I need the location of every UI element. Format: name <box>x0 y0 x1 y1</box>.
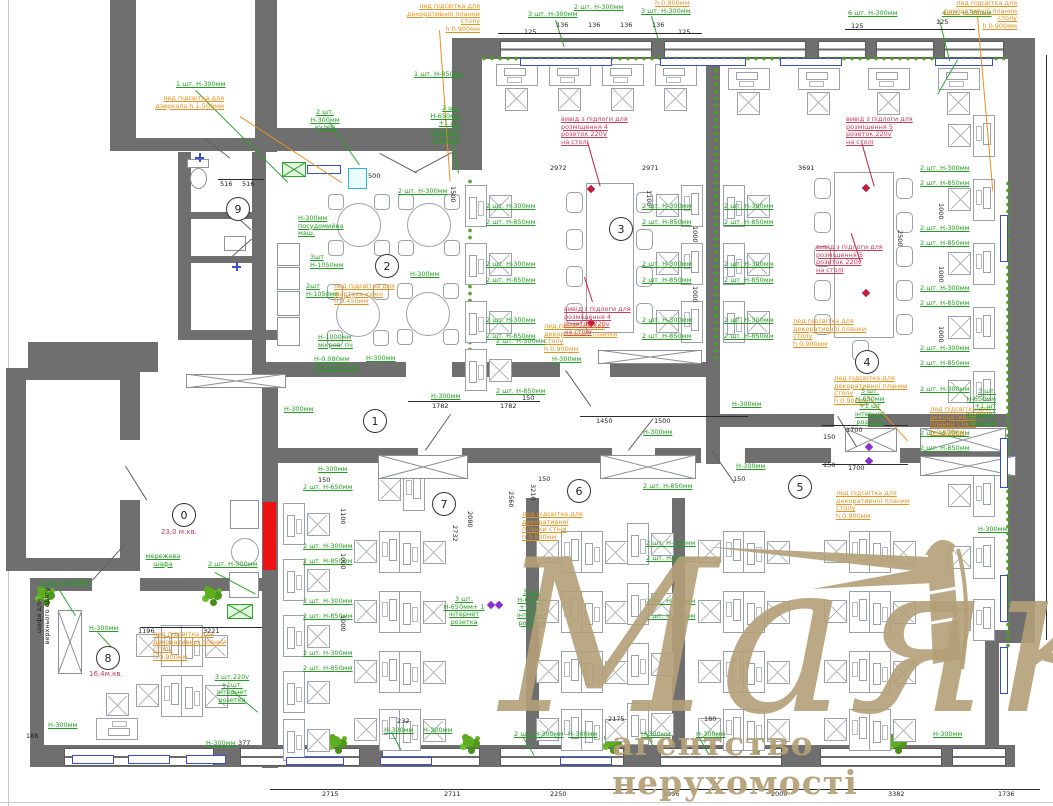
keyboard-icon <box>382 602 388 617</box>
monitor-icon <box>469 361 477 383</box>
keyboard-icon <box>756 547 762 562</box>
dimension-label: 1000 <box>692 226 699 243</box>
annotation-label: 3 шт.220v +1шт. інтернет розетка <box>211 674 253 705</box>
chair-icon <box>824 718 847 741</box>
desk-station <box>743 591 791 633</box>
annotation-label: 3шт Н-1050мм <box>310 254 344 269</box>
door-leaf <box>379 153 417 174</box>
annotation-label: 2 шт. Н-850мм <box>920 300 970 308</box>
desk-station <box>465 349 513 391</box>
desk-station <box>728 68 770 116</box>
keyboard-icon <box>296 575 302 590</box>
keyboard-icon <box>976 610 982 625</box>
monitor-icon <box>983 607 991 629</box>
monitor-icon <box>287 731 295 753</box>
desk <box>869 531 891 573</box>
window-sill-shelf <box>286 757 344 765</box>
keyboard-icon <box>882 547 888 562</box>
annotation-label: Н-300мм <box>732 401 761 409</box>
desk-station <box>868 68 910 116</box>
keyboard-icon <box>564 542 570 557</box>
annotation-label: 2 шт. Н-850мм <box>643 483 693 491</box>
network-cabinet <box>263 502 276 570</box>
cafe-chair-icon <box>328 194 344 210</box>
desk <box>465 301 487 343</box>
chair-icon <box>307 729 330 752</box>
annotation-label: 2 шт. Н-850мм <box>303 665 353 673</box>
dimension-label: 3382 <box>888 791 905 798</box>
meeting-chair-icon <box>896 246 913 267</box>
annotation-label: 2 шт. Н-850мм <box>920 240 970 248</box>
desk-station <box>399 531 447 573</box>
chair-icon <box>536 660 559 683</box>
room-number-badge: 2 <box>375 254 399 278</box>
dimension-label: 377 <box>238 740 250 747</box>
cabinet-crossbox <box>378 455 468 479</box>
desk <box>849 651 871 693</box>
room-number-badge: 9 <box>226 197 250 221</box>
desk <box>465 243 487 285</box>
dimension-label: 500 <box>368 173 380 180</box>
window-sill-shelf <box>780 58 842 66</box>
keyboard-icon <box>406 480 412 495</box>
chair-icon <box>698 540 721 563</box>
keyboard-icon <box>739 81 754 87</box>
desk <box>181 675 203 717</box>
keyboard-icon <box>412 547 418 562</box>
coat-rack-greenbox <box>282 162 306 177</box>
garland-plants-strip <box>712 60 720 360</box>
desk-station <box>399 591 447 633</box>
window-sill-shelf <box>560 757 612 765</box>
keyboard-icon <box>594 607 600 622</box>
door-leaf <box>711 450 735 484</box>
chair-icon <box>948 252 971 275</box>
annotation-label: Н-300мм <box>641 731 670 739</box>
dimension-label: 1736 <box>998 791 1015 798</box>
annotation-label: 2 шт. Н-300мм <box>642 317 692 325</box>
monitor-icon <box>873 663 881 685</box>
wall-segment <box>262 578 278 768</box>
annotation-label: 2 шт. Н-850мм <box>646 613 696 621</box>
keyboard-icon <box>412 607 418 622</box>
window-sill-shelf <box>520 58 612 66</box>
dimension-label: 136 <box>620 22 632 29</box>
annotation-label: лед підсвітка для декоративної планки ст… <box>836 490 922 521</box>
desk <box>379 531 401 573</box>
monitor-icon <box>287 515 295 537</box>
chair-icon <box>893 661 916 684</box>
dimension-label: 2500 <box>897 230 904 247</box>
desk <box>496 64 538 86</box>
monitor-icon <box>631 595 639 617</box>
desk-station <box>743 709 791 751</box>
monitor-icon <box>287 683 295 705</box>
chair-icon <box>767 719 790 742</box>
keyboard-icon <box>809 81 824 87</box>
dimension-label: 136 <box>652 22 664 29</box>
keyboard-icon <box>756 667 762 682</box>
dimension-label: 1000 <box>340 553 347 570</box>
annotation-label: лед підсвітка для декоративної планки ст… <box>386 3 480 34</box>
monitor-icon <box>663 68 685 76</box>
window-sill-shelf <box>186 755 226 764</box>
dimension-label: 1000 <box>340 615 347 632</box>
monitor-icon <box>859 539 867 561</box>
annotation-label: 2 шт. Н-850мм <box>646 555 696 563</box>
wall-segment <box>190 256 252 263</box>
annotation-label: шафа для верхнього одягу <box>36 584 51 648</box>
keyboard-icon <box>882 607 888 622</box>
desk-station <box>743 651 791 693</box>
desk <box>399 531 421 573</box>
annotation-label: вивід з підлоги для розміщення 5 розеток… <box>846 116 914 147</box>
monitor-icon <box>403 603 411 625</box>
keyboard-icon <box>666 77 681 83</box>
annotation-label: 2 шт. Н-300мм <box>920 225 970 233</box>
dimension-label: 2711 <box>444 791 461 798</box>
desk-station <box>353 651 401 693</box>
annotation-label: 2 шт. Н-850мм <box>724 333 774 341</box>
desk <box>379 651 401 693</box>
keyboard-icon <box>852 542 858 557</box>
desk-station <box>947 243 995 285</box>
annotation-label: 2 шт. Н-300мм <box>920 345 970 353</box>
monitor-icon <box>859 659 867 681</box>
desk-station <box>581 651 629 693</box>
dimension-label: 516 <box>220 181 232 188</box>
desk <box>973 475 995 517</box>
dimension-label: 2971 <box>642 165 659 172</box>
desk <box>973 115 995 157</box>
desk <box>723 591 745 633</box>
chair-icon <box>605 661 628 684</box>
monitor-icon <box>983 251 991 273</box>
dimension-label: 3221 <box>203 628 220 635</box>
room-number-badge: 0 <box>172 503 196 527</box>
dimension-line <box>1046 55 1047 640</box>
desk-station <box>697 591 745 633</box>
monitor-icon <box>185 687 193 709</box>
chair-icon <box>767 661 790 684</box>
wall-segment <box>120 368 140 440</box>
shelf-unit <box>230 500 259 529</box>
annotation-label: лед підсвітка для фартуха кухні h 0.450м… <box>334 283 396 306</box>
dimension-label: 150 <box>522 395 534 402</box>
keyboard-icon <box>976 548 982 563</box>
annotation-label: 3 шт. Н-300мм <box>528 11 578 19</box>
annotation-label: 3 шт. Н-650мм+ 1 інтернет розетка <box>443 596 485 627</box>
door-leaf <box>565 370 591 407</box>
chair-icon <box>948 608 971 631</box>
monitor-icon <box>733 599 741 621</box>
desk <box>723 651 745 693</box>
annotation-label: 3 шт. Н-650мм +1 шт інтернет розетка <box>846 388 894 426</box>
desk-station <box>353 531 401 573</box>
chair-icon <box>824 660 847 683</box>
monitor-icon <box>469 313 477 335</box>
keyboard-icon <box>976 486 982 501</box>
keyboard-icon <box>296 631 302 646</box>
desk <box>938 68 980 90</box>
annotation-label: Н-300мм <box>643 429 672 437</box>
desk-station <box>947 307 995 349</box>
desk-station <box>823 709 871 751</box>
desk-station <box>627 643 675 685</box>
wall-segment <box>985 630 999 748</box>
annotation-label: 2 шт. Н-300мм <box>398 188 448 196</box>
faucet-icon <box>232 262 241 271</box>
chair-icon <box>893 601 916 624</box>
keyboard-icon <box>507 77 522 83</box>
chair-icon <box>611 88 634 111</box>
annotation-label: лед підсвітка для дзеркала h 1.500мм <box>150 95 224 110</box>
cafe-chair-icon <box>397 283 413 299</box>
wall-segment <box>745 448 831 463</box>
room-number-badge: 8 <box>96 646 120 670</box>
wall-segment <box>178 152 191 338</box>
chair-icon <box>664 88 687 111</box>
desk-station <box>869 591 917 633</box>
annotation-label: 2 шт. Н-300мм кулер <box>301 109 349 132</box>
annotation-label: h 0.900мм <box>655 0 690 8</box>
desk <box>973 599 995 641</box>
chair-icon <box>698 600 721 623</box>
monitor-icon <box>389 539 397 561</box>
chair-icon <box>307 513 330 536</box>
keyboard-icon <box>594 667 600 682</box>
desk-station <box>947 475 995 517</box>
keyboard-icon <box>296 519 302 534</box>
monitor-icon <box>469 255 477 277</box>
desk <box>728 68 770 90</box>
chair-icon <box>948 124 971 147</box>
dimension-label: 1000 <box>938 203 945 220</box>
monitor-icon <box>876 72 898 80</box>
monitor-icon <box>413 477 421 499</box>
chair-icon <box>505 88 528 111</box>
desk <box>283 503 305 545</box>
dimension-label: 1700 <box>848 465 865 472</box>
cafe-chair-icon <box>373 330 389 346</box>
leader-line <box>587 142 601 186</box>
chair-icon <box>558 88 581 111</box>
dimension-label: 1100 <box>340 508 347 525</box>
desk <box>283 719 305 761</box>
annotation-label: 3 шт. Н-650мм + 1 шт. інтернет розетка <box>514 589 550 627</box>
sheet-border-bottom <box>0 802 1053 803</box>
annotation-label: Н-300мм <box>423 727 452 735</box>
annotation-label: вивід з підлоги для розміщення 4 розеток… <box>561 116 629 147</box>
desk <box>743 531 765 573</box>
keyboard-icon <box>882 725 888 740</box>
desk <box>869 591 891 633</box>
annotation-label: 2 шт. Н-850мм <box>642 333 692 341</box>
dimension-label: 1500 <box>450 186 457 203</box>
monitor-icon <box>631 655 639 677</box>
monitor-icon <box>571 599 579 621</box>
monitor-icon <box>983 315 991 337</box>
chair-icon <box>767 601 790 624</box>
dimension-label: 232 <box>397 718 409 725</box>
chair-icon <box>605 541 628 564</box>
desk <box>627 703 649 745</box>
dimension-label: 125 <box>524 29 536 36</box>
monitor-icon <box>631 535 639 557</box>
annotation-label: 1 шт. Н-300мм <box>176 81 226 89</box>
desk <box>655 64 697 86</box>
monitor-icon <box>557 68 579 76</box>
dimension-label: 180 <box>704 716 716 723</box>
monitor-icon <box>610 68 632 76</box>
dimension-label: 2560 <box>508 491 515 508</box>
desk-station <box>655 64 697 112</box>
annotation-label: Н-300мм <box>384 727 413 735</box>
desk <box>465 349 487 391</box>
annotation-label: 2 шт. Н-850мм <box>486 219 536 227</box>
wall-segment <box>6 368 26 570</box>
chair-icon <box>824 600 847 623</box>
desk-station <box>283 503 331 545</box>
desk <box>561 651 583 693</box>
annotation-label: 1 шт. Н-850мм <box>414 71 464 79</box>
dimension-label: 516 <box>242 181 254 188</box>
annotation-label: 6 шт. Н-300мм <box>848 10 898 18</box>
monitor-icon <box>873 543 881 565</box>
desk <box>399 591 421 633</box>
cabinet-crossbox <box>600 455 696 479</box>
monitor-icon <box>983 187 991 209</box>
coat-rack-greenbox <box>227 604 253 619</box>
monitor-icon <box>733 659 741 681</box>
keyboard-icon <box>976 126 982 141</box>
annotation-label: вивід з підлоги для розміщення 5 розеток… <box>816 244 884 275</box>
desk <box>465 185 487 227</box>
chair-icon <box>948 484 971 507</box>
dimension-label: 150 <box>318 477 330 484</box>
dimension-label: 136 <box>556 22 568 29</box>
annotation-label: Н-300мм посудомийна маш. <box>298 215 342 238</box>
faucet-icon <box>195 153 204 162</box>
desk-station <box>823 651 871 693</box>
monitor-icon <box>585 663 593 685</box>
cooler-icon <box>348 168 367 189</box>
dimension-label: 188 <box>26 733 38 740</box>
annotation-label: 2 шт. Н-300мм <box>574 4 624 12</box>
annotation-label: 2 шт. Н-300мм <box>646 598 696 606</box>
keyboard-icon <box>879 81 894 87</box>
keyboard-icon <box>412 667 418 682</box>
room-number-badge: 1 <box>363 409 387 433</box>
chair-icon <box>651 653 674 676</box>
keyboard-icon <box>164 686 170 701</box>
meeting-chair-icon <box>896 314 913 335</box>
floor-plan-canvas: Маяк агентство нерухомості 1 шт. Н-300мм… <box>0 0 1053 806</box>
chair-icon <box>354 540 377 563</box>
dimension-label: 2732 <box>452 525 459 542</box>
room-number-badge: 6 <box>567 479 591 503</box>
keyboard-icon <box>296 735 302 750</box>
dimension-label: 125 <box>851 23 863 30</box>
monitor-icon <box>736 72 758 80</box>
room-number-badge: 5 <box>788 475 812 499</box>
monitor-icon <box>171 683 179 705</box>
dimension-label: 1782 <box>432 403 449 410</box>
chair-icon <box>893 541 916 564</box>
desk <box>627 643 649 685</box>
monitor-icon <box>571 659 579 681</box>
desk <box>161 675 183 717</box>
monitor-icon <box>747 603 755 625</box>
desk-station <box>823 591 871 633</box>
chair-icon <box>948 188 971 211</box>
annotation-label: лед підсвітка для декоративної планки ст… <box>522 511 594 542</box>
dimension-label: 2080 <box>467 511 474 528</box>
annotation-label: Н-300мм <box>318 466 347 474</box>
chair-icon <box>877 92 900 115</box>
annotation-label: Н-300мм <box>552 356 581 364</box>
keyboard-icon <box>976 190 982 205</box>
monitor-icon <box>747 663 755 685</box>
annotation-label: 2 шт. Н-850мм <box>920 445 970 453</box>
desk <box>973 243 995 285</box>
desk-station <box>549 64 591 112</box>
keyboard-icon <box>949 81 964 87</box>
meeting-chair-icon <box>566 192 583 213</box>
desk-station <box>869 651 917 693</box>
monitor-icon <box>691 251 699 273</box>
cafe-chair-icon <box>397 329 413 345</box>
annotation-label: Н-300мм <box>933 731 962 739</box>
monitor-icon <box>691 193 699 215</box>
keyboard-icon <box>726 662 732 677</box>
desk <box>602 64 644 86</box>
annotation-label: Н-300мм <box>568 731 597 739</box>
monitor-icon <box>585 543 593 565</box>
dimension-label: 150 <box>823 434 835 441</box>
room-number-badge: 3 <box>609 217 633 241</box>
annotation-label: 2 шт. Н-300мм <box>486 261 536 269</box>
plant-icon <box>463 736 474 747</box>
annotation-label: Н-300мм <box>366 355 395 363</box>
annotation-label: Н-300мм <box>410 271 439 279</box>
window-sill-shelf <box>1000 438 1008 488</box>
desk-station <box>353 591 401 633</box>
dimension-label: 2000 <box>771 791 788 798</box>
cafe-chair-icon <box>398 240 414 256</box>
keyboard-icon <box>112 721 127 727</box>
keyboard-icon <box>564 602 570 617</box>
desk <box>723 531 745 573</box>
annotation-label: 2 шт. Н-850мм <box>486 277 536 285</box>
plant-icon <box>205 588 216 599</box>
dimension-label: 1196 <box>138 628 155 635</box>
wall-segment <box>610 362 708 377</box>
monitor-icon <box>859 599 867 621</box>
monitor-icon <box>403 663 411 685</box>
keyboard-icon <box>852 662 858 677</box>
chair-icon <box>947 92 970 115</box>
dimension-label: 1000 <box>938 326 945 343</box>
keyboard-icon <box>382 662 388 677</box>
annotation-label: Н-1000мм мікров. пч <box>318 334 353 349</box>
monitor-icon <box>403 543 411 565</box>
meeting-chair-icon <box>814 212 831 233</box>
meeting-chair-icon <box>566 266 583 287</box>
annotation-label: 2 шт. Н-650мм +1 шт інтернет розетка <box>414 105 460 143</box>
keyboard-icon <box>478 201 484 216</box>
window <box>952 748 1006 766</box>
